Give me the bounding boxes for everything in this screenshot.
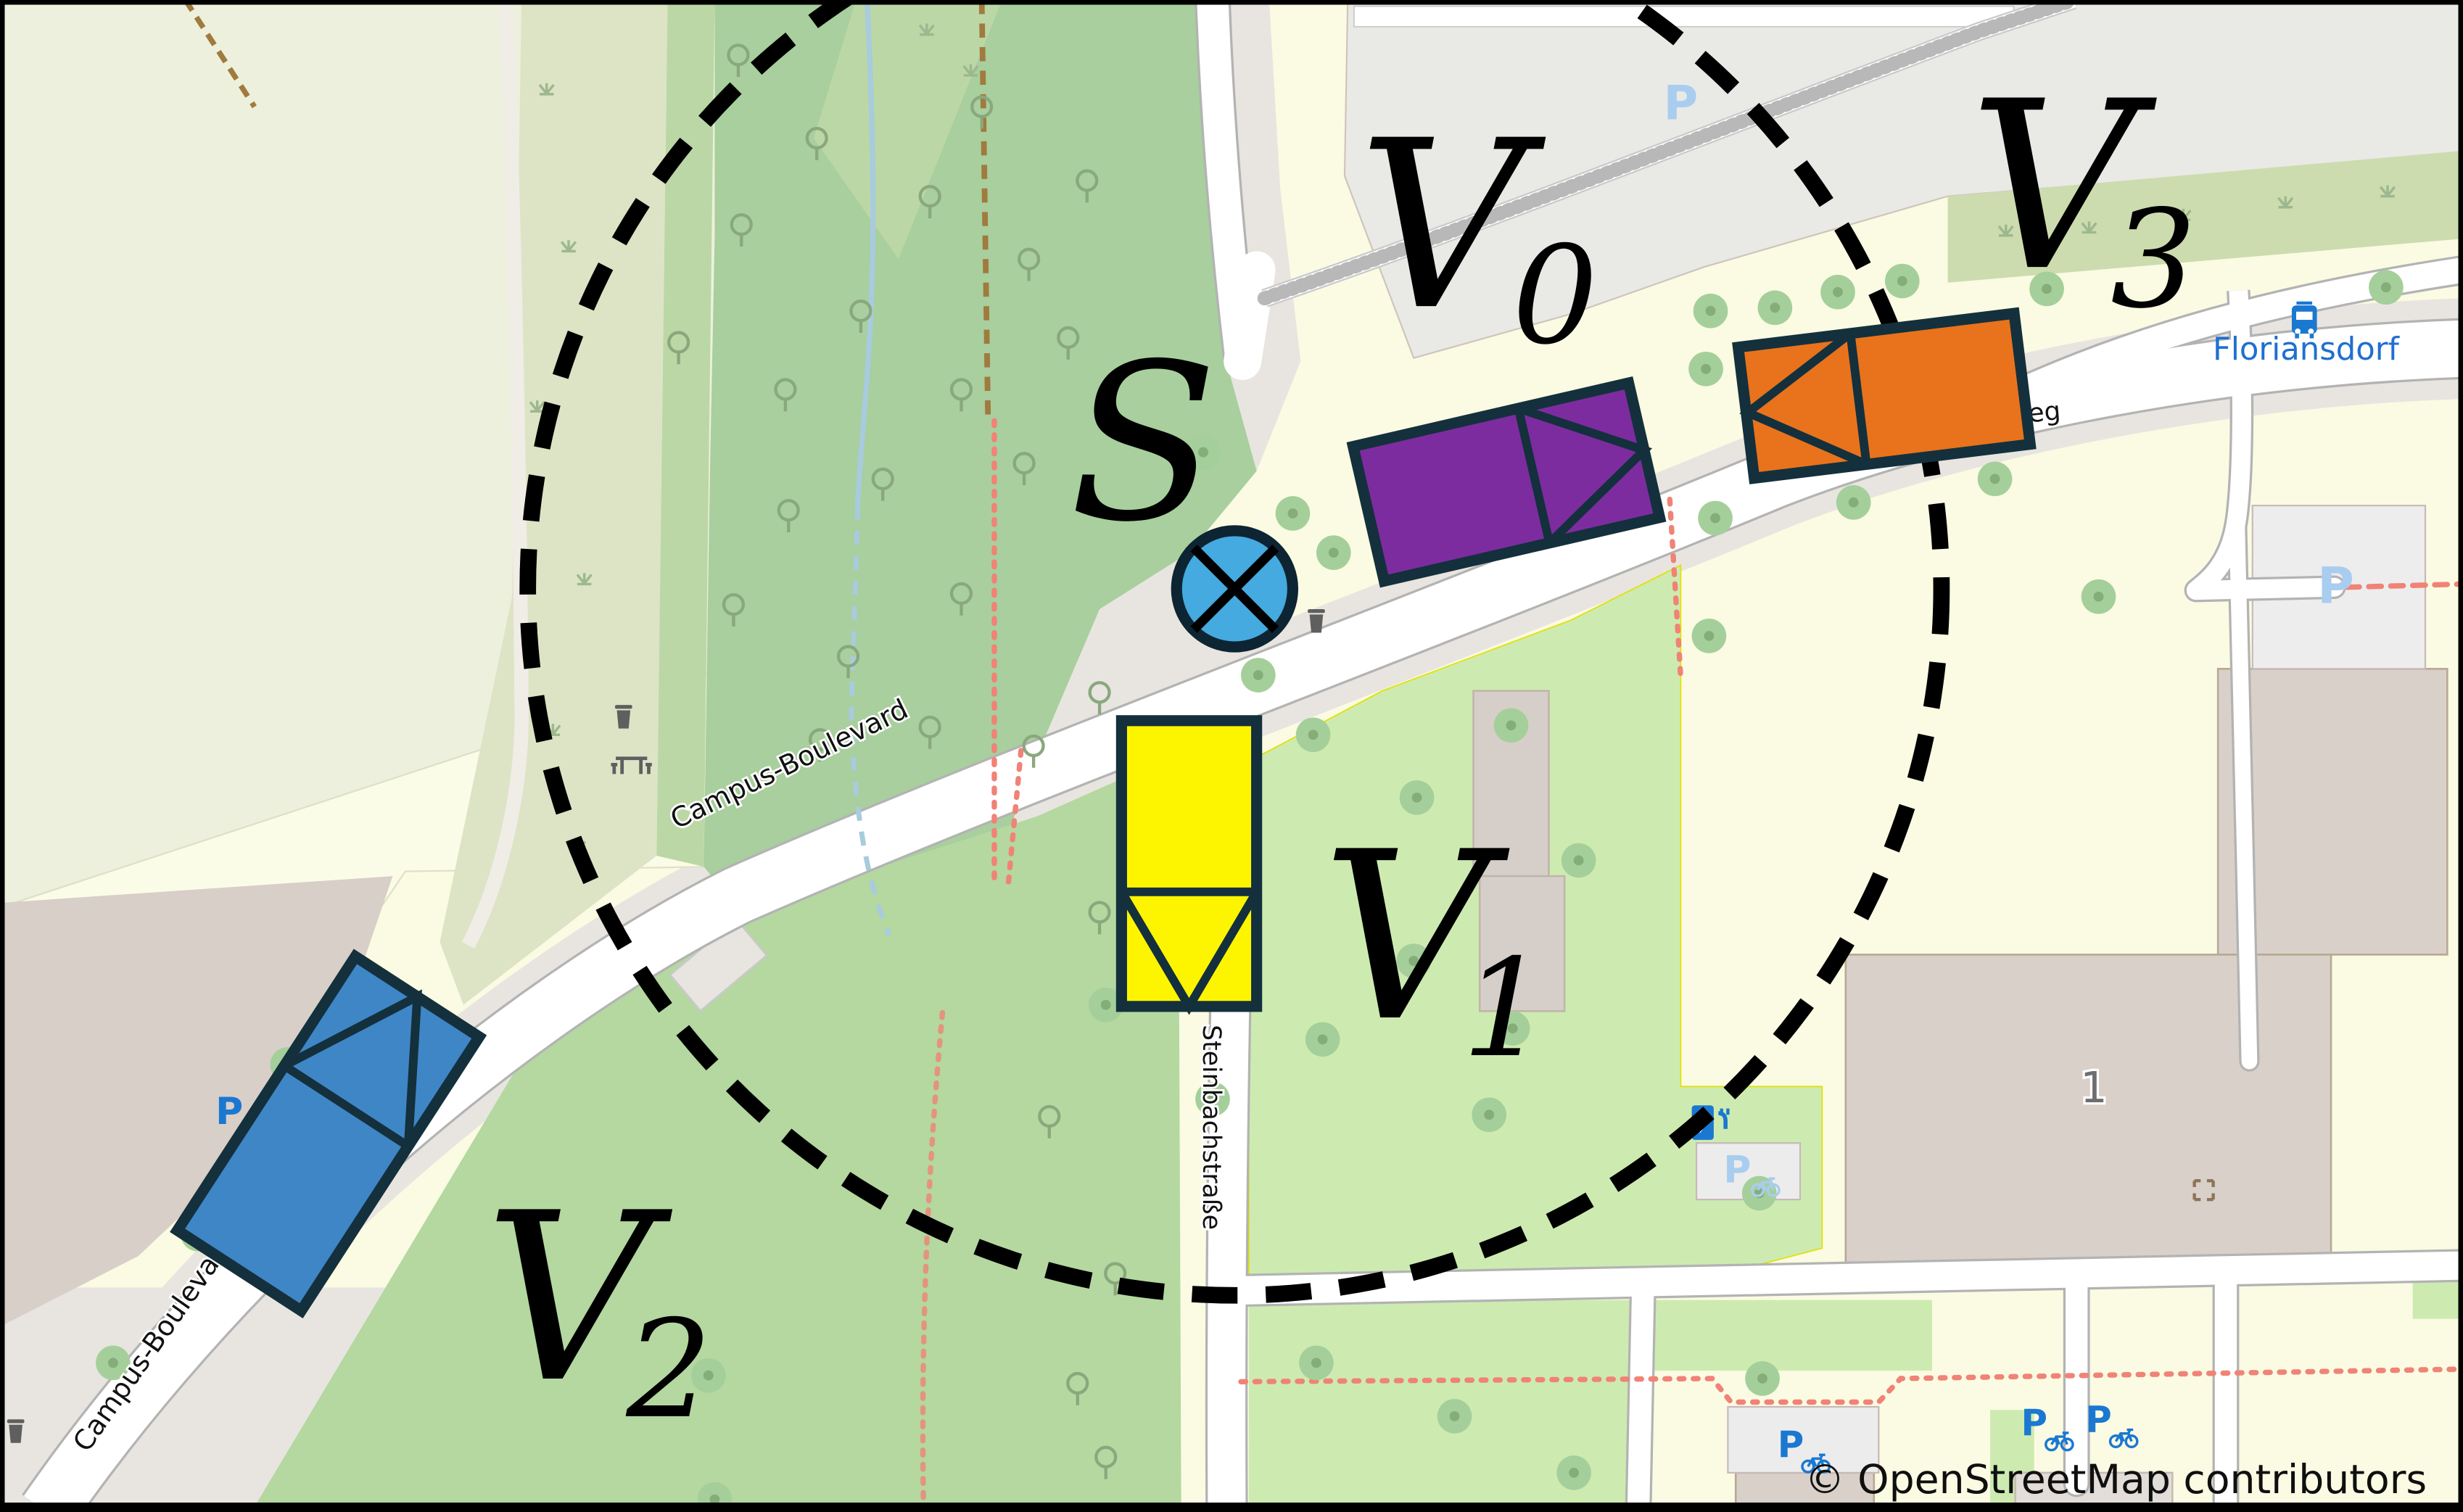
- svg-text:P: P: [1723, 1148, 1751, 1191]
- vehicle-marker-v3[interactable]: [1738, 313, 2031, 478]
- vehicle-marker-v1[interactable]: [1121, 721, 1256, 1007]
- house-number-label: 1: [2080, 1063, 2107, 1112]
- svg-text:3: 3: [2111, 181, 2197, 338]
- sensor-label: S: [1069, 318, 1218, 570]
- parking-label: P: [1664, 77, 1699, 131]
- map-screenshot: P P P P P P P: [0, 0, 2463, 1512]
- place-label-floriansdorf: Floriansdorf: [2213, 331, 2401, 368]
- map-canvas[interactable]: P P P P P P P: [0, 0, 2463, 1512]
- street-label-steinbachstrasse: Steinbachstraße: [1197, 1025, 1226, 1230]
- svg-text:0: 0: [1512, 217, 1598, 374]
- svg-text:P: P: [1778, 1424, 1804, 1466]
- svg-text:P: P: [2021, 1402, 2047, 1444]
- svg-text:1: 1: [1462, 930, 1548, 1087]
- svg-text:2: 2: [625, 1291, 712, 1448]
- svg-text:P: P: [2085, 1399, 2112, 1441]
- osm-attribution: © OpenStreetMap contributors: [1804, 1457, 2427, 1503]
- parking-label: P: [2317, 557, 2354, 615]
